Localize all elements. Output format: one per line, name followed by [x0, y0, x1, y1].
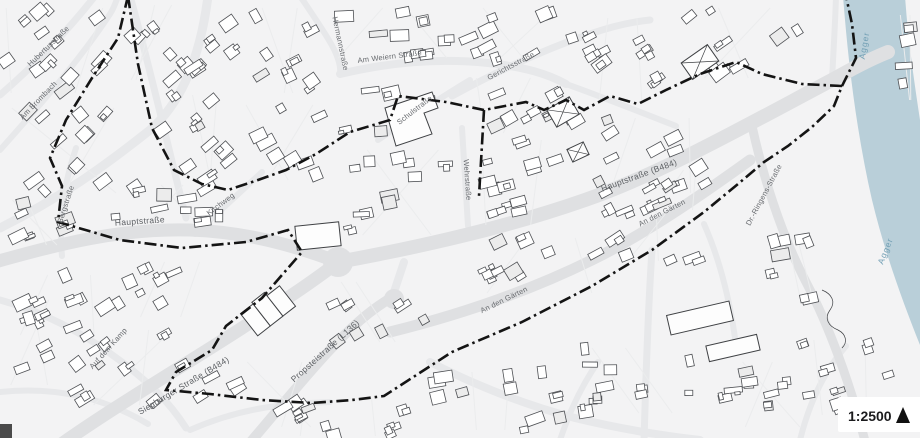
landmark-dark-corner [0, 424, 12, 438]
road-junction [323, 247, 353, 277]
scale-indicator: 1:2500 [838, 397, 920, 432]
map-canvas[interactable]: Hauptstraße Hauptstraße (B484) Siegburge… [0, 0, 920, 438]
map-viewport[interactable]: Hauptstraße Hauptstraße (B484) Siegburge… [0, 0, 920, 438]
landmark-town-hall [295, 222, 341, 250]
scale-label: 1:2500 [848, 408, 892, 424]
